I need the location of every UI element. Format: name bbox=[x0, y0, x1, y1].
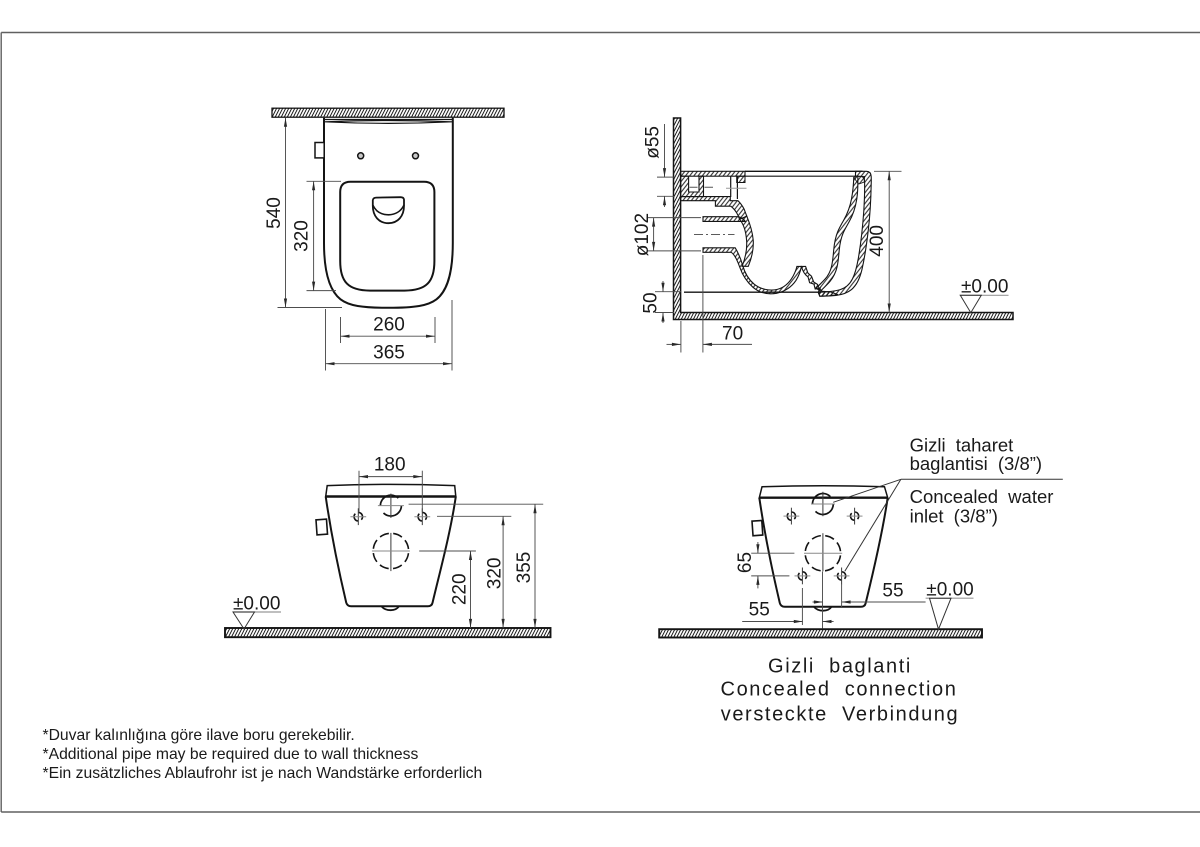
svg-text:55: 55 bbox=[882, 580, 903, 601]
svg-text:Concealed water: Concealed water bbox=[910, 486, 1054, 507]
svg-text:50: 50 bbox=[641, 292, 662, 313]
svg-text:±0.00: ±0.00 bbox=[926, 580, 973, 601]
svg-text:*Ein zusätzliches Ablaufrohr i: *Ein zusätzliches Ablaufrohr ist je nach… bbox=[43, 765, 483, 782]
svg-text:55: 55 bbox=[749, 599, 770, 620]
svg-text:Concealed connection: Concealed connection bbox=[721, 679, 958, 701]
svg-text:versteckte Verbindung: versteckte Verbindung bbox=[721, 704, 960, 726]
svg-text:540: 540 bbox=[264, 197, 285, 229]
svg-text:ø55: ø55 bbox=[642, 126, 663, 159]
svg-text:260: 260 bbox=[373, 315, 405, 336]
svg-text:320: 320 bbox=[485, 558, 506, 590]
svg-text:180: 180 bbox=[374, 454, 406, 475]
svg-text:70: 70 bbox=[722, 323, 743, 344]
svg-text:baglantisi (3/8”): baglantisi (3/8”) bbox=[910, 453, 1043, 474]
svg-text:365: 365 bbox=[373, 343, 405, 364]
svg-text:±0.00: ±0.00 bbox=[233, 594, 280, 615]
svg-text:355: 355 bbox=[514, 552, 535, 584]
svg-text:Gizli baglanti: Gizli baglanti bbox=[768, 656, 912, 678]
svg-text:ø102: ø102 bbox=[632, 213, 653, 256]
svg-text:inlet (3/8”): inlet (3/8”) bbox=[910, 506, 998, 527]
svg-text:400: 400 bbox=[867, 225, 888, 257]
svg-text:±0.00: ±0.00 bbox=[961, 277, 1008, 298]
svg-text:*Duvar kalınlığına göre ilave: *Duvar kalınlığına göre ilave boru gerek… bbox=[43, 727, 355, 744]
svg-text:320: 320 bbox=[292, 220, 313, 252]
svg-text:*Additional pipe may be requir: *Additional pipe may be required due to … bbox=[43, 746, 419, 763]
svg-text:65: 65 bbox=[735, 552, 756, 573]
svg-text:220: 220 bbox=[449, 573, 470, 605]
